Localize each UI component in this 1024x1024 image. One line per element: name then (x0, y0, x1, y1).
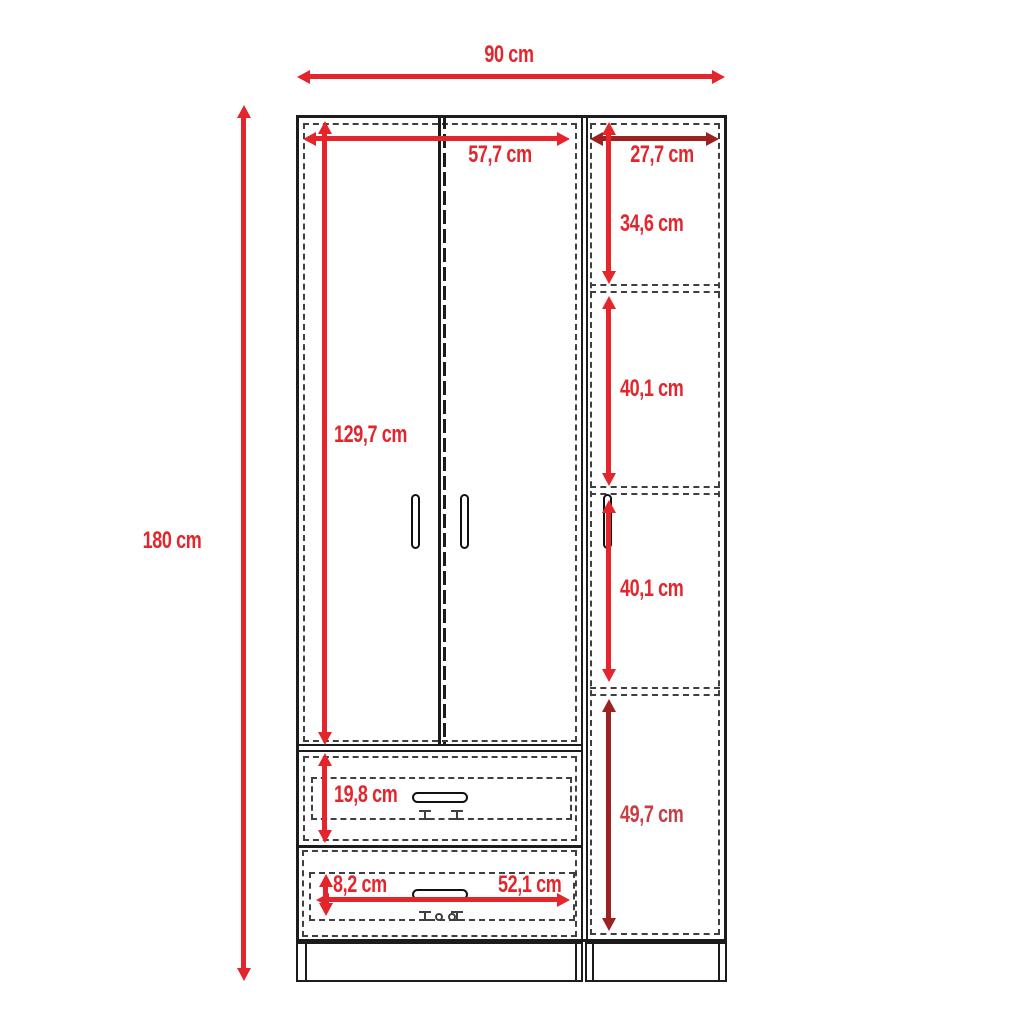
drawer-width-label: 52,1 cm (498, 873, 561, 897)
shelf-1-dashed (590, 284, 720, 293)
drawer-1-height-label: 19,8 cm (334, 783, 397, 807)
doors-height-label: 129,7 cm (334, 423, 407, 447)
drawer-2-height-label: 8,2 cm (333, 873, 387, 897)
drawer-1-slide-mark-right (451, 810, 463, 820)
wardrobe-dimension-diagram: 90 cm 180 cm 57,7 cm 27,7 cm 129,7 cm 34… (0, 0, 1024, 1024)
drawer-2-fitting-left (435, 913, 443, 921)
left-plinth (296, 942, 583, 982)
right-plinth-inner-line-left (592, 942, 594, 982)
drawer-2-slide-mark-left (419, 911, 431, 921)
right-plinth (585, 942, 727, 982)
drawer-1-slide-mark-left (419, 810, 431, 820)
shelf-3-dashed (590, 687, 720, 696)
drawer-1-handle (412, 792, 468, 803)
side-bottom-section-label: 49,7 cm (620, 803, 683, 827)
side-width-label: 27,7 cm (587, 143, 737, 167)
left-plinth-inner-line-right (575, 942, 577, 982)
drawer-1-height-arrow (322, 765, 327, 831)
left-plinth-inner-line-left (305, 942, 307, 982)
left-door-handle (411, 494, 420, 549)
section-divider-double-line (581, 115, 588, 942)
doors-height-arrow (322, 133, 327, 733)
middle-door-handle (460, 494, 469, 549)
side-bottom-section-arrow (606, 711, 611, 919)
overall-width-arrow (309, 74, 713, 79)
side-top-section-label: 34,6 cm (620, 212, 683, 236)
overall-width-label: 90 cm (434, 43, 584, 67)
side-mid-section-1-arrow (606, 308, 611, 474)
drawer-2-fitting-right (448, 913, 456, 921)
overall-height-label: 180 cm (97, 529, 247, 553)
doors-bottom-double-line (296, 744, 583, 752)
right-plinth-inner-line-right (718, 942, 720, 982)
side-mid-section-1-label: 40,1 cm (620, 377, 683, 401)
door-gap-dashed-line (443, 115, 446, 745)
side-mid-section-2-arrow (606, 512, 611, 670)
door-gap-line (438, 115, 441, 745)
side-mid-section-2-label: 40,1 cm (620, 577, 683, 601)
doors-width-label: 57,7 cm (425, 143, 575, 167)
drawer-divider-line (296, 845, 583, 848)
